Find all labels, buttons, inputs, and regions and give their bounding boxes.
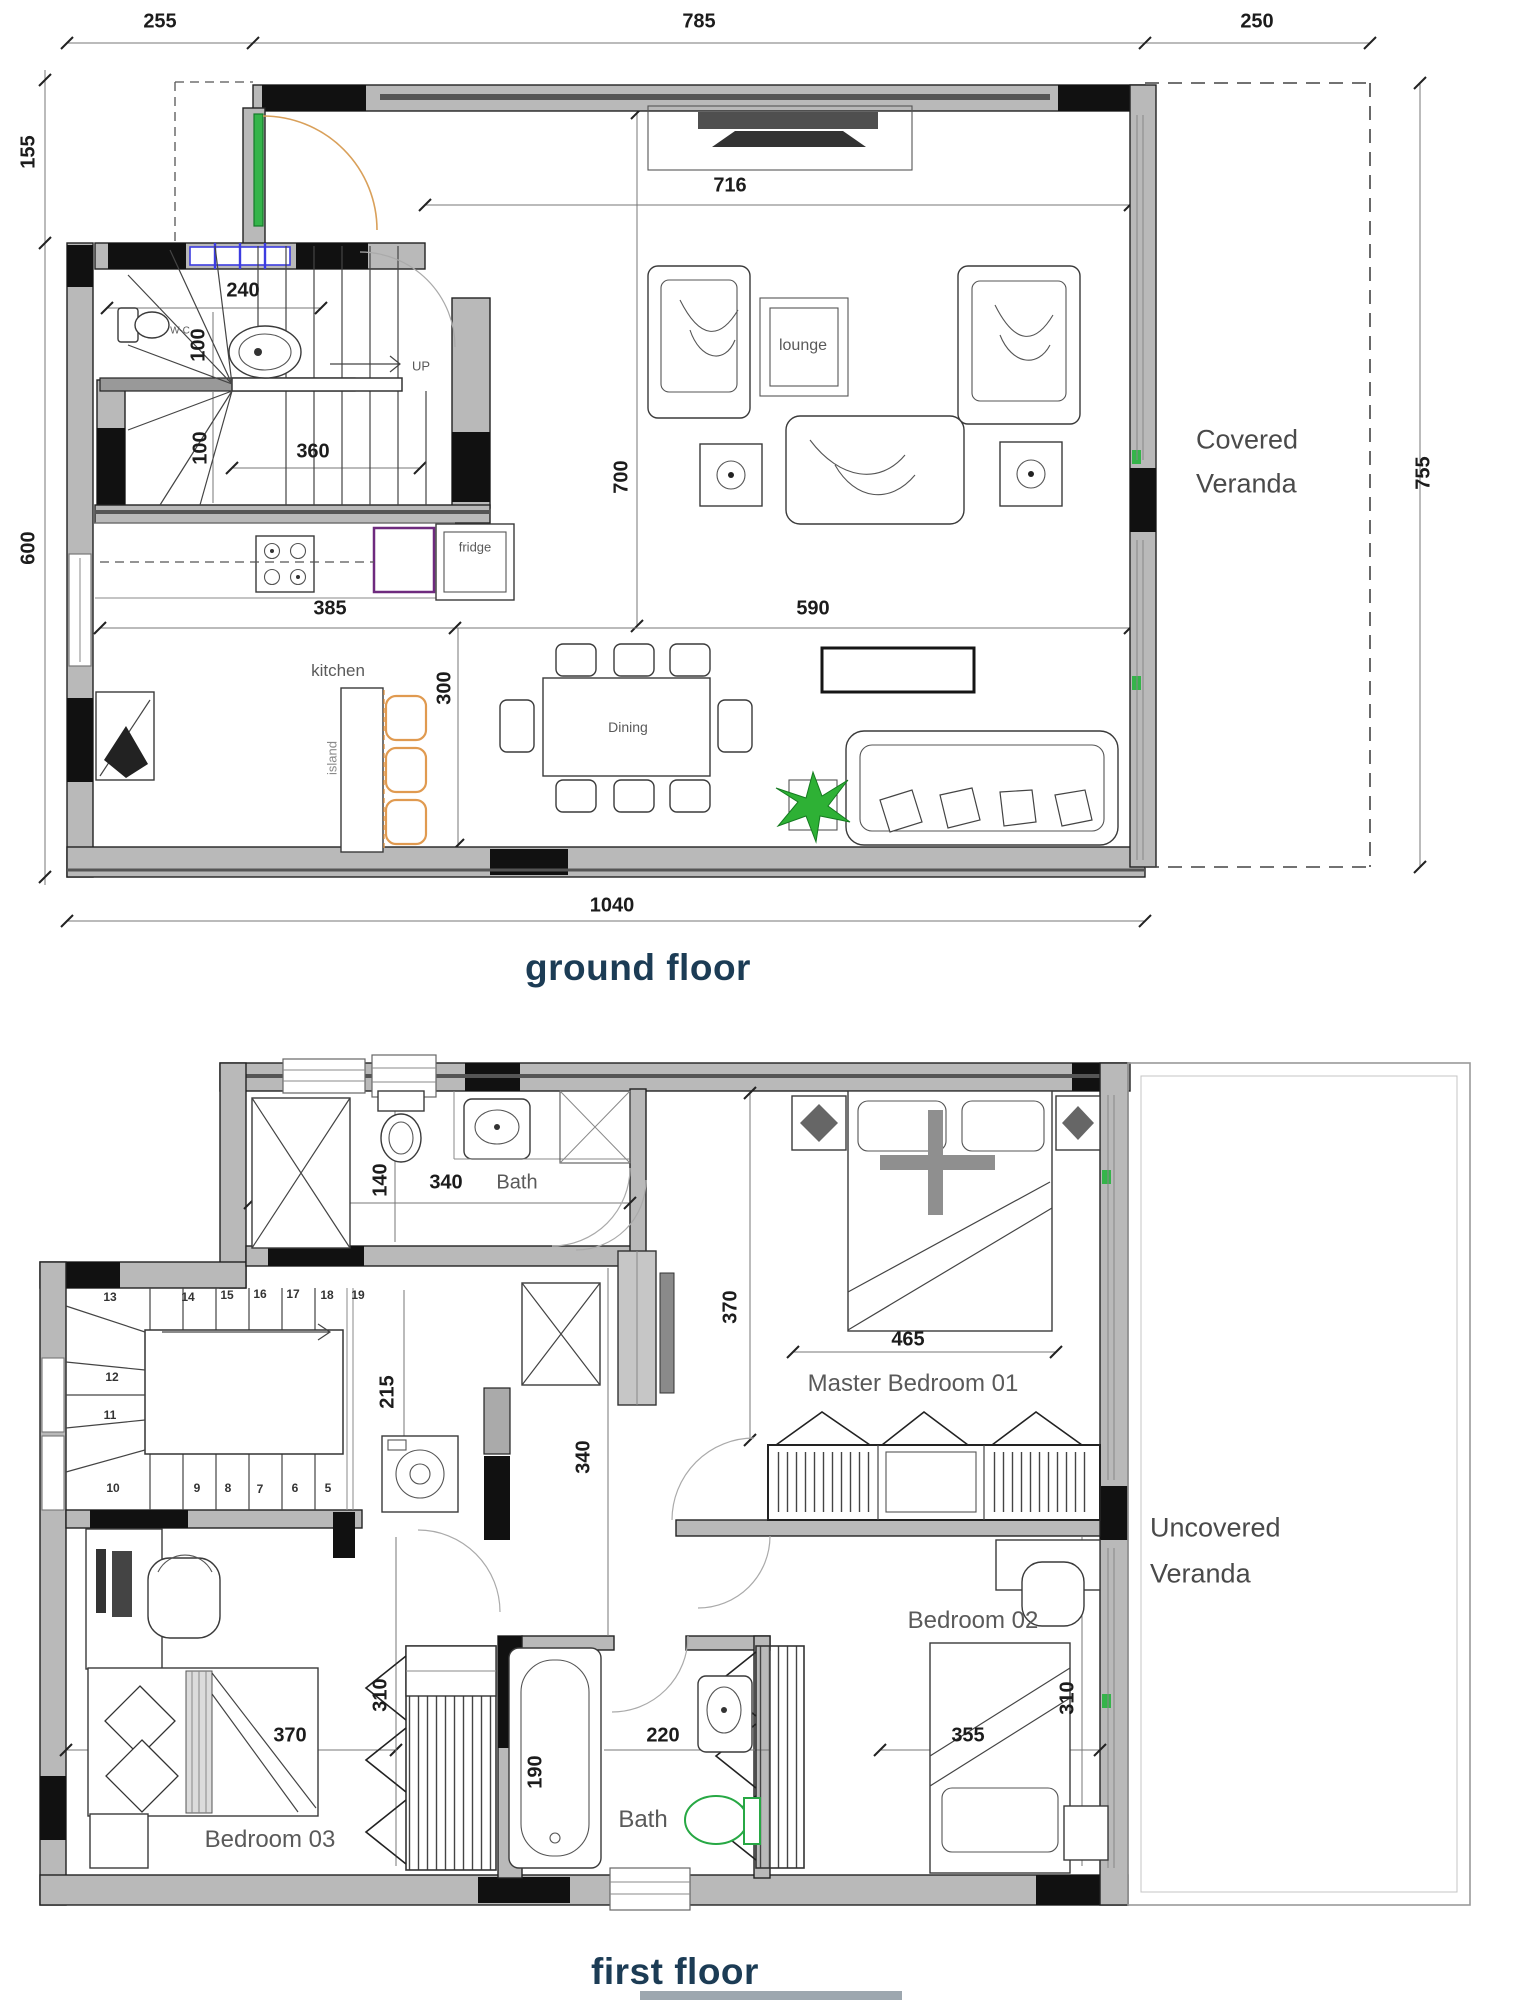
room-label-covered-veranda-1: Covered: [1196, 425, 1298, 456]
chaise: [786, 416, 964, 524]
stair-number: 9: [194, 1481, 201, 1495]
dim-ff-370-b3: 370: [273, 1725, 306, 1748]
stair-number: 5: [325, 1481, 332, 1495]
ff-stairs: [66, 1288, 353, 1510]
console-table: [822, 648, 974, 692]
washing-machine-icon: [382, 1436, 458, 1512]
gf-entrance-door: [254, 114, 377, 230]
ground-floor-title: ground floor: [525, 947, 751, 989]
dim-ff-355: 355: [951, 1725, 984, 1748]
dim-ff-340-bath: 340: [429, 1172, 462, 1195]
room-label-covered-veranda-2: Veranda: [1196, 469, 1297, 500]
tv-icon: [698, 112, 878, 129]
ff-uncovered-veranda-outline: [1128, 1063, 1470, 1905]
dim-gf-left-lower: 600: [18, 531, 41, 564]
gf-stairs: [128, 246, 455, 505]
room-label-wc: W-C: [170, 326, 190, 337]
dim-ff-310-b2: 310: [1057, 1681, 1080, 1714]
toilet-icon: [685, 1796, 747, 1844]
room-label-dining: Dining: [608, 719, 648, 735]
room-label-kitchen: kitchen: [311, 661, 365, 681]
toilet-icon: [378, 1091, 424, 1111]
room-label-uncovered-veranda-2: Veranda: [1150, 1559, 1251, 1590]
stair-number: 15: [220, 1288, 233, 1302]
master-bed: [848, 1091, 1052, 1331]
stair-number: 16: [253, 1287, 266, 1301]
room-label-bedroom-02: Bedroom 02: [908, 1607, 1039, 1635]
ff-door-arcs: [576, 1180, 770, 1608]
dim-gf-590: 590: [796, 598, 829, 621]
dim-ff-340-hall: 340: [573, 1440, 596, 1473]
bar-stool-icon: [386, 696, 426, 740]
first-floor-title: first floor: [591, 1951, 759, 1993]
ff-bathroom-top: [252, 1091, 630, 1248]
stair-number: 18: [320, 1288, 333, 1302]
room-label-master-bedroom: Master Bedroom 01: [808, 1370, 1019, 1398]
stair-number: 14: [181, 1290, 194, 1304]
ff-bedroom-02: [716, 1540, 1108, 1873]
dim-gf-bottom: 1040: [590, 895, 635, 918]
dim-gf-240: 240: [226, 280, 259, 303]
stair-number: 17: [286, 1287, 299, 1301]
bed: [930, 1643, 1070, 1873]
room-label-uncovered-veranda-1: Uncovered: [1150, 1513, 1281, 1544]
stair-number: 11: [104, 1408, 117, 1422]
dim-ff-190: 190: [525, 1755, 548, 1788]
bar-stool-icon: [386, 748, 426, 792]
stair-number: 7: [257, 1482, 264, 1496]
stair-number: 19: [351, 1288, 364, 1302]
stair-number: 13: [103, 1290, 116, 1304]
gf-sofa: [846, 731, 1118, 845]
stair-number: 12: [105, 1370, 118, 1384]
dim-ff-465: 465: [891, 1329, 924, 1352]
dim-gf-top-left: 255: [143, 11, 176, 34]
dim-gf-100a: 100: [188, 328, 211, 361]
sliding-door-panel: [660, 1273, 674, 1393]
dim-gf-right: 755: [1413, 456, 1436, 489]
room-label-island: island: [325, 741, 340, 775]
gf-plant: [776, 772, 850, 842]
dim-gf-300: 300: [434, 671, 457, 704]
dim-ff-370-closet: 370: [720, 1290, 743, 1323]
stair-number: 8: [225, 1481, 232, 1495]
ff-bedroom-03: [86, 1529, 500, 1870]
dim-gf-716: 716: [713, 175, 746, 198]
floor-plans-canvas: 255 785 250 155 600 755 1040 716 700 240…: [0, 0, 1516, 2000]
stair-number: 6: [292, 1481, 299, 1495]
dim-ff-140: 140: [370, 1163, 393, 1196]
room-label-bath-bottom: Bath: [618, 1806, 667, 1834]
fridge-icon: [436, 524, 514, 600]
ff-master-bedroom: [768, 1091, 1100, 1520]
room-label-bath-top: Bath: [496, 1172, 537, 1195]
dim-ff-220: 220: [646, 1725, 679, 1748]
dim-gf-left-upper: 155: [18, 135, 41, 168]
nightstand: [1064, 1806, 1108, 1860]
dim-gf-385: 385: [313, 598, 346, 621]
stair-number: 10: [106, 1481, 119, 1495]
dim-gf-700: 700: [611, 460, 634, 493]
nightstand: [90, 1814, 148, 1868]
room-label-up: UP: [412, 359, 430, 374]
room-label-bedroom-03: Bedroom 03: [205, 1826, 336, 1854]
ff-hall: [382, 1251, 674, 1512]
dim-ff-215: 215: [377, 1375, 400, 1408]
room-label-lounge: lounge: [779, 337, 827, 355]
wardrobe: [756, 1646, 804, 1868]
dim-ff-310-b3: 310: [370, 1678, 393, 1711]
dim-gf-top-mid: 785: [682, 11, 715, 34]
dim-gf-100b: 100: [190, 431, 213, 464]
stove-icon: [256, 536, 314, 592]
bar-stool-icon: [386, 800, 426, 844]
plant-icon: [776, 772, 850, 842]
gf-island: [341, 688, 426, 852]
dishwasher-icon: [374, 528, 434, 592]
dim-gf-top-right: 250: [1240, 11, 1273, 34]
room-label-fridge: fridge: [459, 540, 492, 555]
dim-gf-360: 360: [296, 441, 329, 464]
gf-kitchen: [95, 523, 514, 780]
